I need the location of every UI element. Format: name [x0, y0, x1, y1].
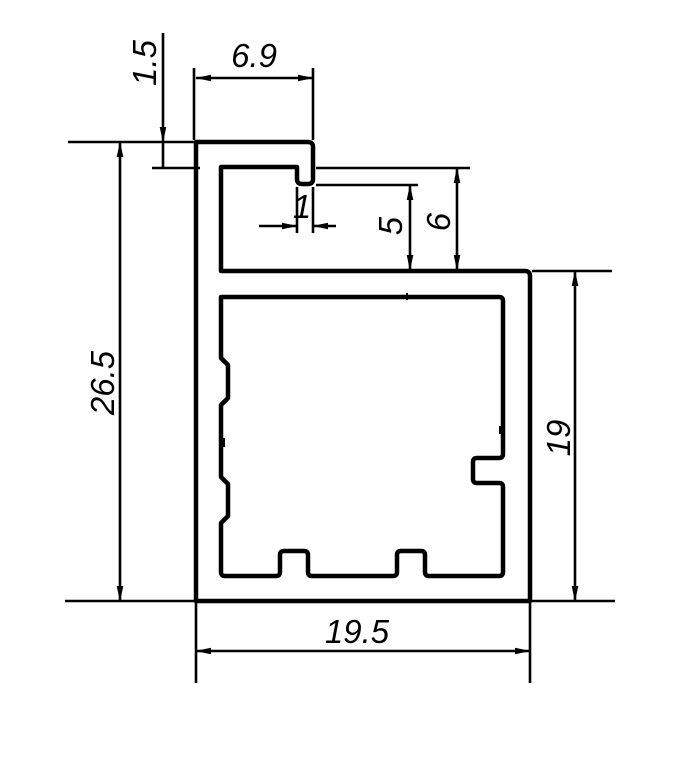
center-tick-marks	[224, 293, 500, 447]
flange-to-body-gap-label: 6	[420, 212, 457, 231]
lip-to-body-gap-label: 5	[372, 216, 409, 235]
body-height-label: 19	[540, 420, 577, 457]
profile-cross-section-drawing: 6.9 1.5 1 5 6 26.5 19 19.5	[0, 0, 699, 759]
profile-shape	[196, 142, 530, 601]
lip-width-label: 1	[293, 188, 311, 225]
overall-height-label: 26.5	[84, 350, 121, 416]
extension-lines	[65, 68, 615, 683]
dimension-lines	[120, 33, 575, 651]
overall-width-label: 19.5	[325, 613, 390, 650]
flange-thickness-label: 1.5	[126, 39, 163, 86]
drawing-canvas: 6.9 1.5 1 5 6 26.5 19 19.5	[0, 0, 699, 759]
flange-width-label: 6.9	[231, 37, 277, 74]
